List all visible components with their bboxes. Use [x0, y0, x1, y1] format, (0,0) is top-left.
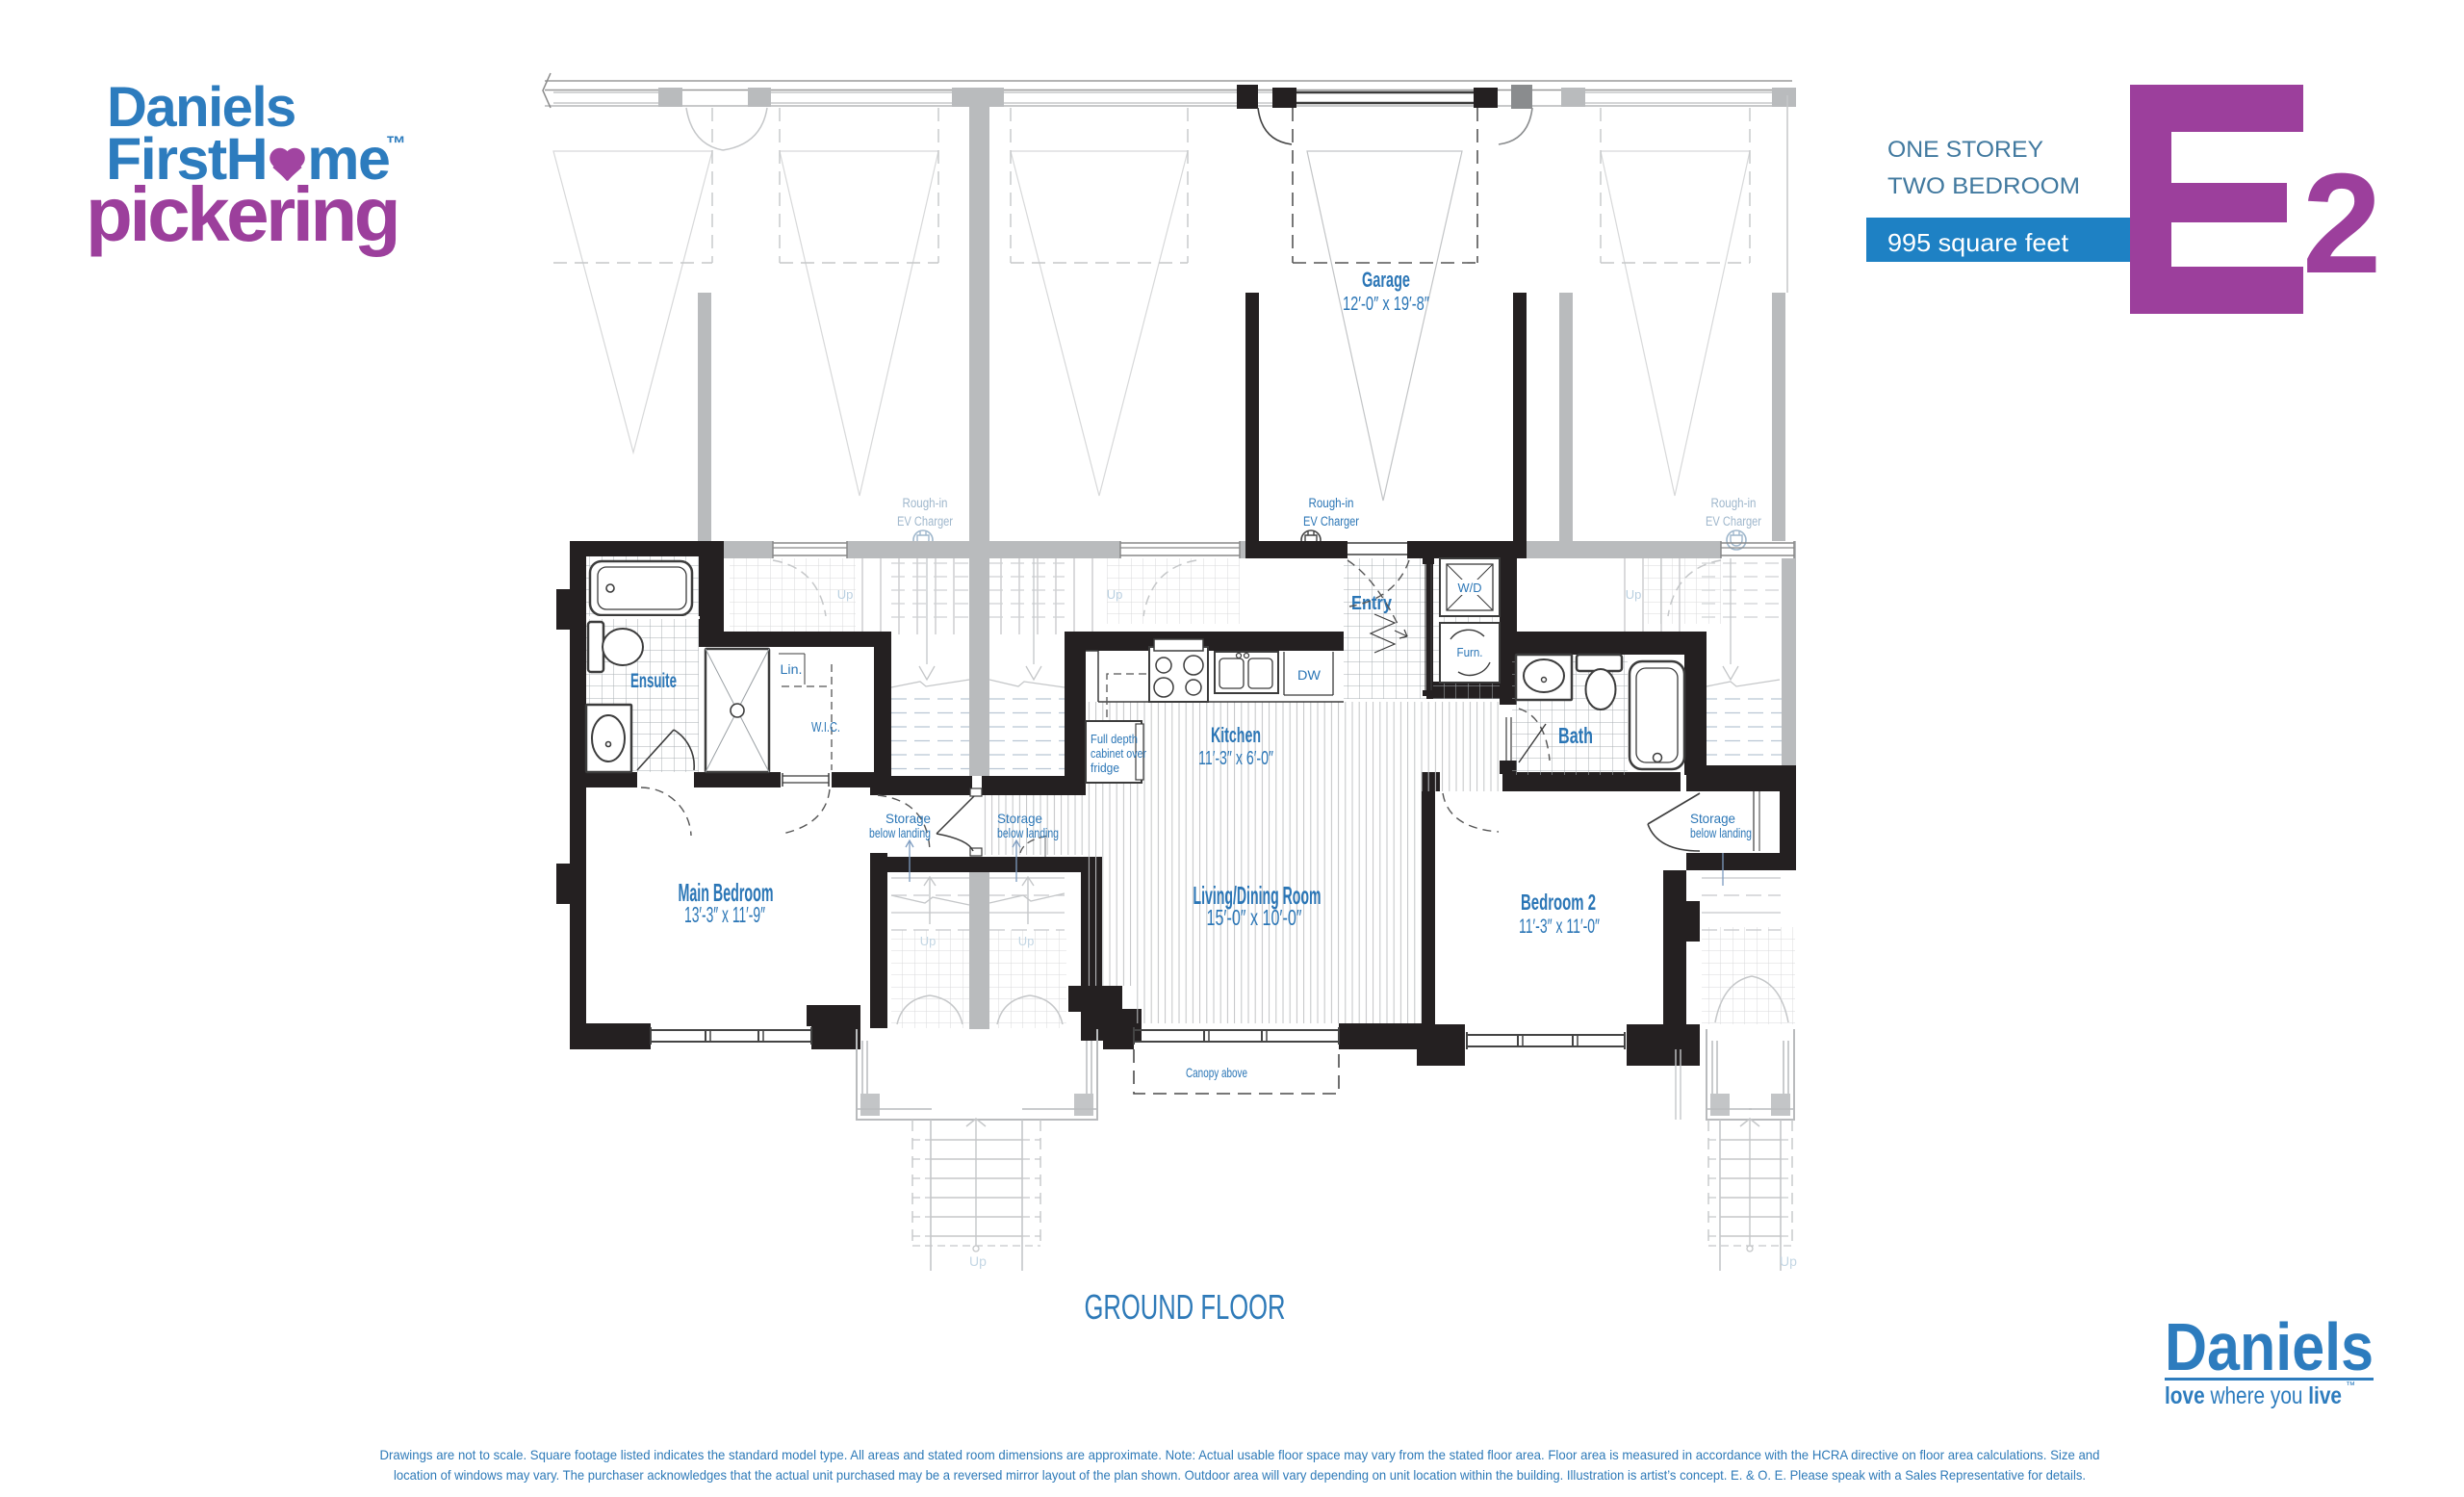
svg-text:love where you live: love where you live: [2165, 1382, 2342, 1409]
svg-text:DW: DW: [1297, 667, 1322, 683]
svg-text:below landing: below landing: [1690, 825, 1752, 840]
svg-text:13′-3″ x 11′-9″: 13′-3″ x 11′-9″: [684, 902, 765, 927]
svg-text:EV Charger: EV Charger: [1303, 514, 1359, 529]
svg-text:Up: Up: [1780, 1253, 1797, 1269]
svg-text:ONE STOREY: ONE STOREY: [1887, 137, 2043, 163]
svg-text:Up: Up: [969, 1253, 987, 1269]
svg-text:™: ™: [2346, 1381, 2355, 1391]
svg-text:11′-3″ x 11′-0″: 11′-3″ x 11′-0″: [1519, 916, 1600, 938]
svg-text:Rough-in: Rough-in: [903, 496, 948, 510]
svg-text:EV Charger: EV Charger: [1706, 514, 1761, 529]
svg-text:fridge: fridge: [1091, 761, 1119, 775]
svg-text:Canopy above: Canopy above: [1186, 1065, 1247, 1080]
svg-text:Rough-in: Rough-in: [1309, 496, 1354, 510]
svg-text:Lin.: Lin.: [781, 661, 803, 677]
svg-text:EV Charger: EV Charger: [897, 514, 953, 529]
svg-text:TWO BEDROOM: TWO BEDROOM: [1887, 173, 2080, 199]
svg-text:location of windows may vary.: location of windows may vary. The purcha…: [394, 1467, 2086, 1483]
svg-text:Garage: Garage: [1362, 268, 1410, 292]
svg-text:Up: Up: [837, 587, 854, 602]
svg-text:Bath: Bath: [1558, 723, 1593, 748]
svg-text:15′-0″ x 10′-0″: 15′-0″ x 10′-0″: [1207, 905, 1302, 930]
svg-text:Furn.: Furn.: [1457, 646, 1483, 659]
svg-text:Daniels: Daniels: [2165, 1309, 2374, 1384]
svg-text:W.I.C.: W.I.C.: [811, 719, 840, 736]
svg-text:Ensuite: Ensuite: [630, 670, 677, 692]
svg-text:Storage: Storage: [1690, 811, 1735, 826]
svg-text:995 square feet: 995 square feet: [1887, 228, 2069, 257]
svg-text:Storage: Storage: [885, 811, 931, 826]
svg-text:Up: Up: [1626, 587, 1642, 602]
svg-text:Bedroom 2: Bedroom 2: [1521, 890, 1596, 915]
svg-text:Full depth: Full depth: [1091, 733, 1138, 746]
svg-text:Rough-in: Rough-in: [1711, 496, 1757, 510]
svg-text:below landing: below landing: [869, 825, 931, 840]
svg-text:11′-3″ x 6′-0″: 11′-3″ x 6′-0″: [1198, 748, 1273, 769]
svg-text:12′-0″ x 19′-8″: 12′-0″ x 19′-8″: [1343, 294, 1429, 315]
svg-text:Up: Up: [1018, 934, 1035, 948]
svg-text:below landing: below landing: [997, 825, 1059, 840]
svg-text:Drawings are not to scale. Squ: Drawings are not to scale. Square footag…: [380, 1447, 2100, 1462]
svg-text:Up: Up: [920, 934, 937, 948]
svg-text:GROUND FLOOR: GROUND FLOOR: [1085, 1287, 1286, 1327]
svg-text:Kitchen: Kitchen: [1211, 723, 1261, 747]
svg-text:W/D: W/D: [1458, 581, 1482, 595]
svg-text:Up: Up: [1107, 587, 1123, 602]
svg-text:Storage: Storage: [997, 811, 1042, 826]
svg-text:cabinet over: cabinet over: [1091, 747, 1146, 761]
